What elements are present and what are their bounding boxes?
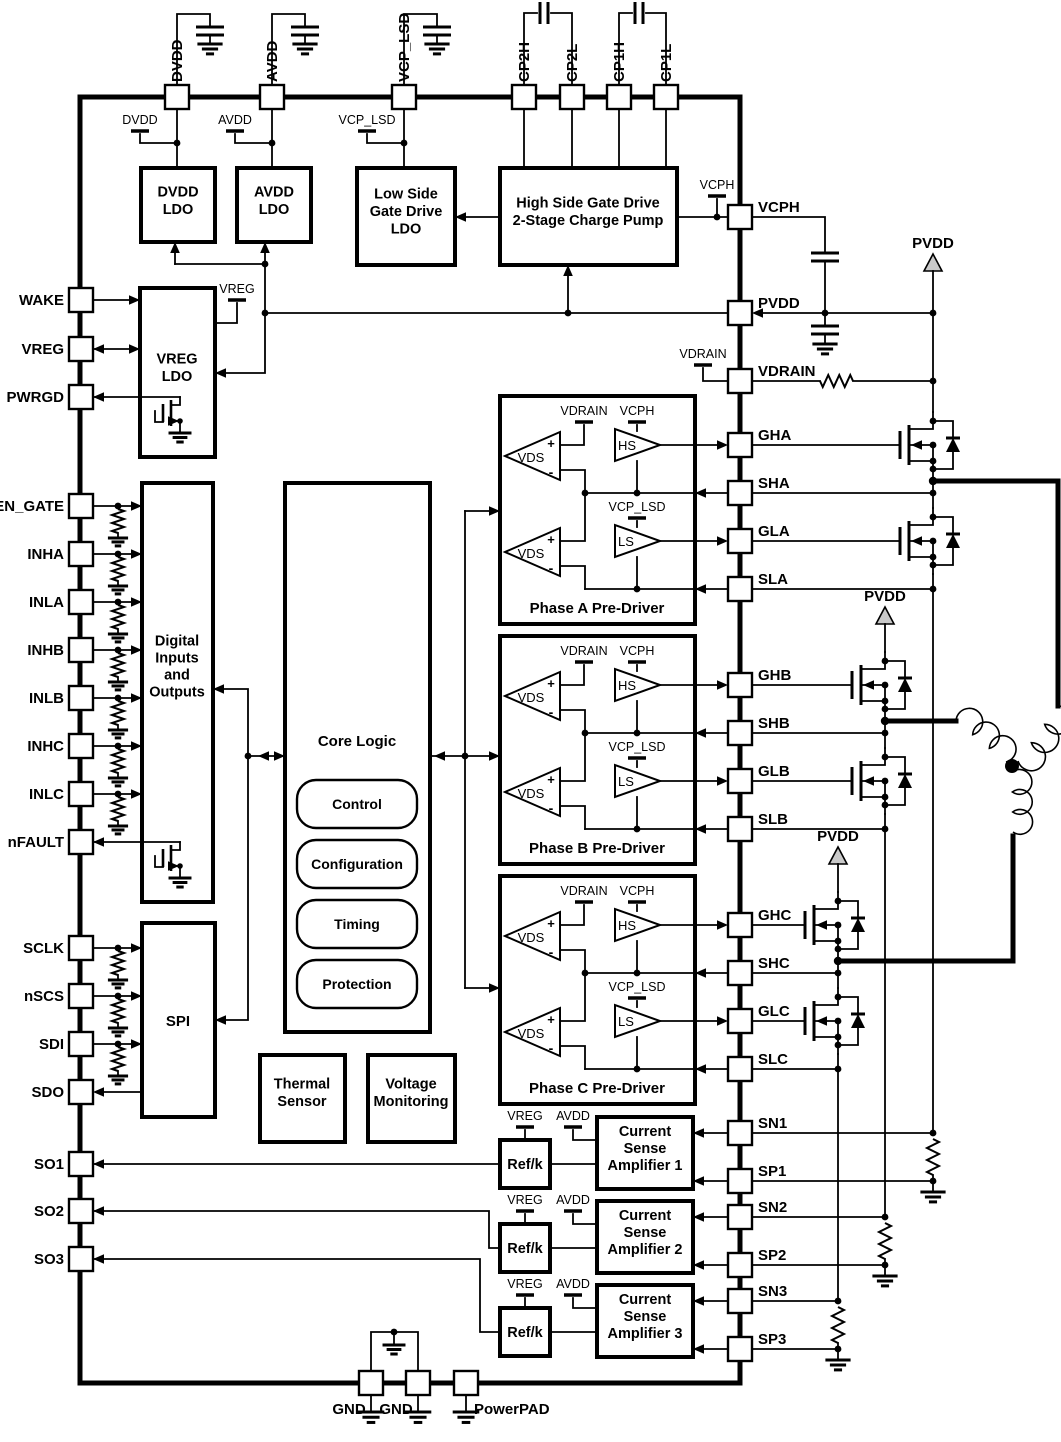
block-label-line: and	[164, 668, 190, 684]
body-diode-lead	[933, 421, 953, 438]
pin-label-left: PWRGD	[7, 389, 65, 406]
block-label-line: Amplifier 3	[608, 1326, 683, 1342]
ic-pin	[728, 1121, 752, 1145]
pin-label-right: SP1	[758, 1163, 786, 1180]
pin-label-right: GLB	[758, 763, 790, 780]
pvdd-branch	[219, 313, 265, 373]
body-diode-icon	[946, 438, 960, 452]
refk-label: Ref/k	[507, 1241, 543, 1257]
ic-pin	[607, 85, 631, 109]
junction-dot	[930, 514, 937, 521]
block-label-line: Amplifier 1	[608, 1158, 683, 1174]
arrowhead-icon	[93, 1159, 104, 1169]
pin-label-left: SO3	[34, 1251, 64, 1268]
junction-dot	[882, 698, 889, 705]
motor-coil-icon	[1018, 706, 1061, 771]
ic-pin	[165, 85, 189, 109]
body-diode-icon	[851, 918, 865, 932]
block-label-line: Monitoring	[374, 1094, 449, 1110]
pin-label-left: nSCS	[24, 988, 64, 1005]
ic-pin	[69, 385, 93, 409]
junction-dot	[634, 490, 641, 497]
supply-label-pvdd: PVDD	[817, 828, 859, 845]
ic-pin	[69, 1032, 93, 1056]
pin-label-left: WAKE	[19, 292, 64, 309]
arrowhead-icon	[93, 837, 104, 847]
supply-label: VREG	[507, 1193, 542, 1207]
arrowhead-icon	[93, 392, 104, 402]
pin-label-right: SLA	[758, 571, 788, 588]
body-diode-lead	[933, 517, 953, 534]
junction-dot	[835, 1018, 842, 1025]
avdd-tap	[573, 1214, 597, 1224]
ls-label: LS	[618, 534, 634, 549]
ic-pin	[728, 817, 752, 841]
pin-label-left: INHC	[27, 738, 64, 755]
block-label-line: Inputs	[155, 651, 199, 667]
junction-dot	[835, 1042, 842, 1049]
body-diode-lead	[838, 997, 858, 1014]
block-label-line: Digital	[155, 634, 199, 650]
pin-label-top: CP1H	[611, 42, 628, 82]
ic-pin	[69, 734, 93, 758]
junction-dot	[115, 503, 122, 510]
pin-label-right: GHA	[758, 427, 792, 444]
ic-pin	[512, 85, 536, 109]
phase-a-motor-wire	[933, 481, 1058, 706]
core-module-label: Control	[332, 796, 382, 812]
ic-pin	[69, 638, 93, 662]
block-label-line: Amplifier 2	[608, 1242, 683, 1258]
junction-dot	[930, 418, 937, 425]
refk-label: Ref/k	[507, 1325, 543, 1341]
junction-dot	[634, 970, 641, 977]
ic-pin	[728, 301, 752, 325]
junction-dot	[930, 490, 937, 497]
ic-pin	[728, 1009, 752, 1033]
pin-label-right: SP2	[758, 1247, 786, 1264]
junction-dot	[930, 562, 937, 569]
ic-pin	[69, 542, 93, 566]
junction-dot	[882, 802, 889, 809]
pin-label-right: PVDD	[758, 295, 800, 312]
ic-pin	[69, 686, 93, 710]
block-label-line: Sensor	[277, 1094, 327, 1110]
junction-dot	[177, 418, 183, 424]
supply-label: AVDD	[556, 1109, 590, 1123]
block-label-line: Outputs	[149, 685, 205, 701]
pin-label-top: CP2H	[516, 42, 533, 82]
pin-label-right: GLA	[758, 523, 790, 540]
core-module-label: Configuration	[311, 856, 403, 872]
body-diode-icon	[898, 678, 912, 692]
supply-arrow-pvdd	[829, 847, 847, 864]
pin-label-left: SCLK	[23, 940, 64, 957]
minus-label: -	[549, 1040, 554, 1056]
mosfet-source-lead	[861, 701, 885, 718]
mosfet-drain-lead	[861, 652, 885, 669]
junction-dot	[835, 1034, 842, 1041]
junction-dot	[1005, 759, 1019, 773]
resistor-symbol	[112, 653, 124, 677]
block-label-line: SPI	[166, 1013, 190, 1030]
junction-dot	[115, 791, 122, 798]
supply-arrow-pvdd	[876, 607, 894, 624]
hs-label: HS	[618, 438, 636, 453]
supply-label: VCP_LSD	[609, 740, 666, 754]
mosfet-arrow	[863, 776, 874, 786]
junction-dot	[930, 554, 937, 561]
supply-label: AVDD	[556, 1277, 590, 1291]
vcph-ext-wire	[752, 217, 825, 253]
pin-label-top: DVDD	[169, 39, 186, 82]
vreg-out-wire	[215, 303, 237, 323]
supply-tap-wire	[235, 134, 272, 143]
ic-pin	[728, 529, 752, 553]
pin-label-right: GHB	[758, 667, 792, 684]
pin-label-right: SN2	[758, 1199, 787, 1216]
mosfet-source-lead	[861, 797, 885, 814]
junction-dot	[881, 717, 889, 725]
junction-dot	[835, 898, 842, 905]
ic-pin	[728, 721, 752, 745]
ic-pin	[454, 1371, 478, 1395]
pin-label-top: VCP_LSD	[396, 13, 413, 82]
junction-dot	[834, 957, 842, 965]
ls-label: LS	[618, 1014, 634, 1029]
motor-coil-icon	[956, 708, 1016, 762]
ic-pin	[69, 590, 93, 614]
mosfet-source-lead	[814, 1037, 838, 1054]
block-label-line: 2-Stage Charge Pump	[513, 213, 664, 229]
junction-dot	[882, 682, 889, 689]
vds-label: VDS	[518, 1026, 545, 1041]
supply-label: VDRAIN	[679, 347, 726, 361]
ic-pin	[392, 85, 416, 109]
junction-dot	[882, 794, 889, 801]
ic-pin	[728, 913, 752, 937]
arrowhead-icon	[717, 536, 728, 546]
supply-label: VCP_LSD	[339, 113, 396, 127]
ic-pin	[728, 1057, 752, 1081]
ic-pin	[728, 205, 752, 229]
hs-label: HS	[618, 918, 636, 933]
vds-label: VDS	[518, 930, 545, 945]
resistor-symbol	[112, 605, 124, 629]
block-label-line: LDO	[391, 222, 422, 238]
ic-pin	[69, 1199, 93, 1223]
plus-label: +	[547, 916, 555, 931]
ic-pin	[260, 85, 284, 109]
supply-label: VCPH	[620, 884, 655, 898]
ls-label: LS	[618, 774, 634, 789]
vds-label: VDS	[518, 690, 545, 705]
supply-arrow-pvdd	[924, 254, 942, 271]
block-label-line: Sense	[624, 1309, 667, 1325]
supply-label: VDRAIN	[560, 404, 607, 418]
junction-dot	[835, 994, 842, 1001]
mosfet-arrow	[816, 920, 827, 930]
junction-dot	[835, 938, 842, 945]
pin-label-left: INLB	[29, 690, 64, 707]
supply-label: VDRAIN	[560, 644, 607, 658]
resistor-symbol	[112, 701, 124, 725]
body-diode-lead	[838, 901, 858, 918]
junction-dot	[115, 695, 122, 702]
mosfet-source-lead	[814, 941, 838, 958]
block-label-line: Low Side	[374, 187, 438, 203]
arrowhead-icon	[434, 751, 445, 761]
body-diode-lead	[885, 661, 905, 678]
arrowhead-icon	[717, 776, 728, 786]
mosfet-drain-lead	[814, 988, 838, 1005]
resistor-symbol	[832, 1307, 844, 1343]
junction-dot	[882, 778, 889, 785]
pin-label-right: SHB	[758, 715, 790, 732]
pin-label-right: VCPH	[758, 199, 800, 216]
resistor-symbol	[112, 951, 124, 975]
ic-pin	[728, 433, 752, 457]
junction-dot	[115, 1041, 122, 1048]
ic-pin	[69, 337, 93, 361]
mosfet-drain-lead	[909, 508, 933, 525]
pin-label-left: INHA	[27, 546, 64, 563]
pin-label-left: INLC	[29, 786, 64, 803]
mosfet-arrow	[816, 1016, 827, 1026]
supply-label: AVDD	[218, 113, 252, 127]
supply-label: VCP_LSD	[609, 500, 666, 514]
block-label: High Side Gate Drive2-Stage Charge Pump	[513, 195, 664, 229]
pin-label-right: SLC	[758, 1051, 788, 1068]
resistor-symbol	[112, 509, 124, 533]
supply-label-pvdd: PVDD	[912, 235, 954, 252]
core-module-label: Timing	[334, 916, 380, 932]
mosfet-drain-lead	[909, 412, 933, 429]
phase-c-motor-wire	[838, 836, 1013, 961]
pin-label-right: GLC	[758, 1003, 790, 1020]
plus-label: +	[547, 1012, 555, 1027]
vds-label: VDS	[518, 450, 545, 465]
junction-dot	[930, 458, 937, 465]
motor-coil-icon	[1012, 769, 1033, 834]
block-label-line: LDO	[259, 202, 290, 218]
block-label-line: Current	[619, 1292, 672, 1308]
ic-pin	[728, 1253, 752, 1277]
pin-label-left: SO2	[34, 1203, 64, 1220]
pin-label-left: SO1	[34, 1156, 64, 1173]
block-label-line: AVDD	[254, 184, 294, 200]
block-label-line: LDO	[162, 369, 193, 385]
hs-label: HS	[618, 678, 636, 693]
junction-dot	[930, 1130, 937, 1137]
pin-label-right: SN1	[758, 1115, 787, 1132]
block-label: SPI	[166, 1013, 190, 1030]
ic-pin	[654, 85, 678, 109]
block-label-line: Thermal	[274, 1076, 330, 1092]
phase-label: Phase A Pre-Driver	[530, 600, 665, 617]
arrowhead-icon	[93, 1254, 104, 1264]
so2-wire	[93, 1211, 500, 1248]
pin-label-right: SLB	[758, 811, 788, 828]
ic-pin	[728, 1169, 752, 1193]
supply-label: VDRAIN	[560, 884, 607, 898]
supply-label: VCPH	[700, 178, 735, 192]
junction-dot	[882, 1214, 889, 1221]
body-diode-lead	[885, 757, 905, 774]
vdrain-tap	[703, 368, 728, 381]
block-label: DVDDLDO	[157, 184, 198, 218]
arrowhead-icon	[93, 344, 104, 354]
supply-label: VCP_LSD	[609, 980, 666, 994]
mosfet-arrow	[911, 440, 922, 450]
block-label-line: Sense	[624, 1225, 667, 1241]
junction-dot	[930, 466, 937, 473]
supply-label: VREG	[507, 1109, 542, 1123]
ic-pin	[69, 936, 93, 960]
avdd-tap	[573, 1130, 597, 1140]
junction-dot	[835, 922, 842, 929]
supply-label-pvdd: PVDD	[864, 588, 906, 605]
pin-label-right: VDRAIN	[758, 363, 816, 380]
pin-label-left: SDI	[39, 1036, 64, 1053]
ic-pin	[69, 1080, 93, 1104]
pin-label-top: CP1L	[658, 44, 675, 82]
mosfet-source-lead	[909, 557, 933, 574]
body-diode-icon	[851, 1014, 865, 1028]
arrowhead-icon	[93, 1206, 104, 1216]
phase-label: Phase B Pre-Driver	[529, 840, 665, 857]
supply-label: VCPH	[620, 404, 655, 418]
block-label-line: Sense	[624, 1141, 667, 1157]
ic-pin	[69, 984, 93, 1008]
pin-label-bottom: GND	[379, 1401, 413, 1418]
supply-tap-wire	[140, 134, 177, 143]
block-label-line: LDO	[163, 202, 194, 218]
junction-dot	[882, 658, 889, 665]
junction-dot	[930, 442, 937, 449]
pin-label-top: AVDD	[264, 40, 281, 82]
pin-label-right: SP3	[758, 1331, 786, 1348]
junction-dot	[929, 477, 937, 485]
block-core-logic	[285, 483, 430, 1032]
minus-label: -	[549, 560, 554, 576]
core-module-label: Protection	[322, 976, 391, 992]
resistor-symbol	[112, 557, 124, 581]
ic-pin	[728, 481, 752, 505]
arrowhead-icon	[93, 1087, 104, 1097]
ic-pin	[728, 769, 752, 793]
pin-label-bottom: PowerPAD	[474, 1401, 550, 1418]
junction-dot	[835, 946, 842, 953]
arrowhead-icon	[258, 751, 269, 761]
avdd-tap	[573, 1298, 597, 1308]
junction-dot	[835, 1298, 842, 1305]
vds-label: VDS	[518, 546, 545, 561]
junction-dot	[115, 743, 122, 750]
supply-label: AVDD	[556, 1193, 590, 1207]
block-diagram-page: DVDDAVDDVCP_LSDDVDDLDOAVDDLDOLow SideGat…	[0, 0, 1061, 1442]
block-label: VREGLDO	[156, 351, 197, 385]
ic-pin	[406, 1371, 430, 1395]
core-logic-title: Core Logic	[318, 733, 396, 750]
junction-dot	[634, 1066, 641, 1073]
body-diode-icon	[898, 774, 912, 788]
digital-bus	[213, 689, 248, 1020]
supply-label: VREG	[507, 1277, 542, 1291]
resistor-symbol	[820, 375, 853, 387]
resistor-symbol	[112, 797, 124, 821]
block-label: AVDDLDO	[254, 184, 294, 218]
block-label-line: Voltage	[385, 1076, 436, 1092]
minus-label: -	[549, 944, 554, 960]
supply-label: DVDD	[122, 113, 157, 127]
minus-label: -	[549, 800, 554, 816]
junction-dot	[115, 647, 122, 654]
junction-dot	[634, 826, 641, 833]
block-label: ThermalSensor	[274, 1076, 330, 1110]
junction-dot	[115, 945, 122, 952]
minus-label: -	[549, 464, 554, 480]
junction-dot	[882, 730, 889, 737]
junction-dot	[177, 863, 183, 869]
arrowhead-icon	[717, 440, 728, 450]
ic-pin	[728, 1205, 752, 1229]
minus-label: -	[549, 704, 554, 720]
phase-label: Phase C Pre-Driver	[529, 1080, 665, 1097]
supply-label: VREG	[219, 282, 254, 296]
block-label-line: High Side Gate Drive	[516, 195, 659, 211]
junction-dot	[882, 706, 889, 713]
ic-pin	[69, 1152, 93, 1176]
pin-label-bottom: GND	[332, 1401, 366, 1418]
resistor-symbol	[927, 1139, 939, 1175]
arrowhead-icon	[717, 680, 728, 690]
plus-label: +	[547, 532, 555, 547]
plus-label: +	[547, 436, 555, 451]
ic-pin	[69, 288, 93, 312]
pin-label-right: GHC	[758, 907, 792, 924]
resistor-symbol	[112, 749, 124, 773]
arrowhead-icon	[717, 1016, 728, 1026]
resistor-symbol	[112, 1047, 124, 1071]
ic-pin	[728, 577, 752, 601]
mosfet-arrow	[911, 536, 922, 546]
block-label-line: DVDD	[157, 184, 198, 200]
ic-pin	[728, 961, 752, 985]
ic-pin	[728, 1289, 752, 1313]
ic-pin	[359, 1371, 383, 1395]
block-label-line: Current	[619, 1208, 672, 1224]
refk-label: Ref/k	[507, 1157, 543, 1173]
mosfet-drain-lead	[861, 748, 885, 765]
mosfet-arrow	[863, 680, 874, 690]
pin-label-top: CP2L	[564, 44, 581, 82]
gate-driver-block-diagram: DVDDAVDDVCP_LSDDVDDLDOAVDDLDOLow SideGat…	[0, 0, 1061, 1442]
block-label-line: Gate Drive	[370, 204, 443, 220]
mosfet-source-lead	[909, 461, 933, 478]
junction-dot	[115, 551, 122, 558]
ic-pin	[69, 494, 93, 518]
ic-pin	[728, 1337, 752, 1361]
plus-label: +	[547, 676, 555, 691]
pin-label-left: INLA	[29, 594, 64, 611]
pin-label-right: SHC	[758, 955, 790, 972]
junction-dot	[634, 586, 641, 593]
junction-dot	[634, 730, 641, 737]
so3-wire	[93, 1259, 500, 1332]
junction-dot	[115, 993, 122, 1000]
junction-dot	[835, 970, 842, 977]
